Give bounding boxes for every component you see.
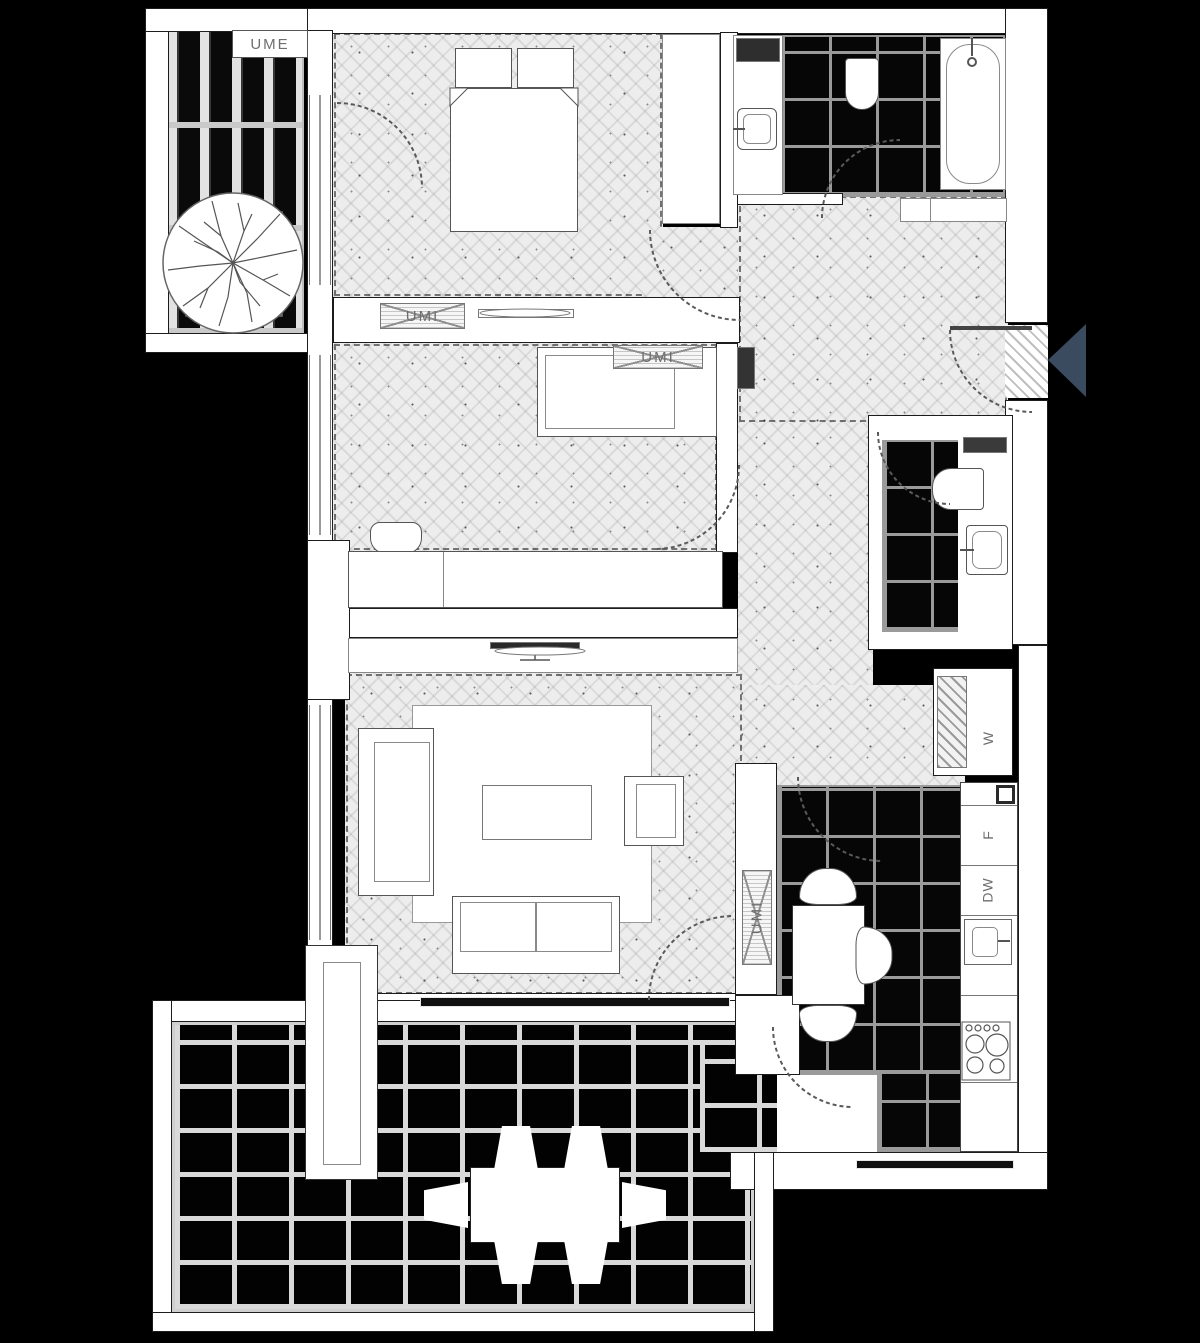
terrace-floor [172,1022,754,1312]
desk-partition-wall [345,608,738,638]
bed1-pillow-left [455,48,512,88]
bedroom2-cabinet: UMI [613,345,703,369]
fridge-label: F [980,830,996,840]
balcony-frame-wall [145,8,169,353]
kitchen-floor-lower [877,1072,964,1152]
planter-inner [323,962,361,1165]
counter-divider-5 [961,1082,1017,1083]
armchair-seat [636,784,676,838]
bedroom1-cabinet: UMI [380,303,465,329]
coffee-table [482,785,592,840]
balcony-cabinet-label: UME [250,36,289,53]
entry-cabinet-divider [930,199,931,221]
terrace-frame-left [152,1000,172,1332]
kitchen-sink-basin [972,927,998,957]
balcony-floor [166,30,304,336]
balcony-top-wall [145,8,322,32]
counter-divider-3 [961,915,1017,916]
bedroom2-window [309,355,331,535]
bedroom1-balcony-window [309,95,331,285]
wc-toilet [932,468,984,510]
bathtub-inner [946,44,1000,184]
entry-hall-floor [738,195,1008,423]
bed1-pillow-right [517,48,574,88]
dishwasher-label: DW [980,877,996,902]
hall-mirror [737,347,755,389]
left-column [307,540,350,700]
kitchen-small-appliance [996,785,1015,804]
fridge-label-box: F [963,810,1013,860]
floor-plan: UMI UMI W UMI [0,0,1200,1343]
bedroom1-door-opening-floor [645,227,738,297]
tv [490,642,580,649]
kitchen-cabinet-base [735,995,800,1075]
terrace-frame-bottom [152,1312,774,1332]
entrance-opening [1005,325,1048,398]
balcony-bottom-wall [145,333,322,353]
desk-chair [370,522,422,554]
bathroom-toilet [845,58,879,110]
bathroom-mirror [736,38,780,62]
living-room-window [309,705,331,940]
balcony-cabinet: UME [232,30,308,58]
living-terrace-glazing [420,997,730,1007]
corridor-floor [738,423,873,685]
dining-table [792,905,865,1005]
outdoor-table [470,1167,620,1243]
terrace-frame-right [754,1152,774,1332]
console-shelf [478,309,574,318]
right-wall-upper [1005,8,1048,323]
bedroom2-right-wall [716,343,738,553]
kitchen-bottom-wall [730,1152,1048,1190]
kitchen-cabinet-unit: UMI [742,870,772,965]
bathroom-sink-basin [743,114,771,144]
counter-divider-4 [961,995,1017,996]
dishwasher-label-box: DW [963,865,1013,915]
bedroom2-cabinet-label: UMI [641,349,675,366]
kitchen-terrace-glazing [856,1160,1014,1169]
wc-cistern [963,437,1007,453]
bedroom1-cabinet-label: UMI [406,308,440,325]
entry-cabinet [900,198,1007,222]
counter-divider-1 [961,805,1017,806]
entrance-arrow-icon [1048,324,1086,397]
washer-label-box: W [963,713,1013,763]
wc-basin-inner [972,531,1002,569]
kitchen-walkway [777,1075,877,1152]
desk [348,551,723,608]
kitchen-cabinet-label: UMI [749,901,766,935]
right-wall-kitchen [1018,645,1048,1190]
master-bed [450,88,578,232]
desk-divider [443,552,444,607]
top-exterior-wall [307,8,1048,34]
wardrobe [662,34,720,224]
sofa-left-seat [374,742,430,882]
washer-label: W [980,731,996,745]
sofa-bottom-seat [460,902,612,952]
